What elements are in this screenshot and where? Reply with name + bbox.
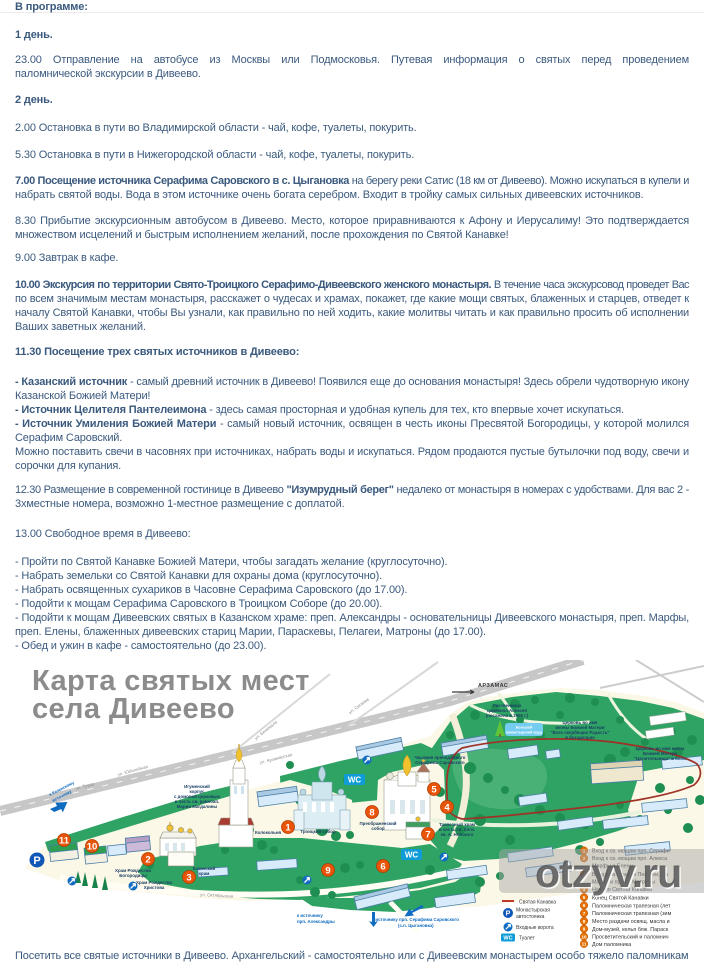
svg-text:к источнику прп. Серафима Саро: к источнику прп. Серафима Саровского: [372, 917, 459, 922]
svg-text:8: 8: [583, 919, 586, 924]
svg-text:Серафима Саровского: Серафима Саровского: [415, 760, 465, 765]
svg-text:(с.п. Цыгановка): (с.п. Цыгановка): [398, 923, 434, 928]
svg-text:10: 10: [581, 934, 587, 939]
svg-text:автостоянка: автостоянка: [516, 914, 545, 920]
svg-text:7: 7: [583, 911, 586, 916]
svg-text:11: 11: [59, 836, 70, 847]
svg-text:Христова: Христова: [144, 885, 165, 890]
svg-text:собор: собор: [371, 826, 385, 831]
svg-text:2: 2: [145, 855, 150, 866]
svg-text:Монастырская: Монастырская: [516, 908, 550, 914]
svg-text:кн. А. Невского: кн. А. Невского: [441, 832, 474, 837]
svg-text:Место раздачи освящ. масла и: Место раздачи освящ. масла и: [592, 919, 670, 925]
svg-text:6: 6: [583, 903, 586, 908]
svg-text:5: 5: [431, 785, 437, 796]
svg-text:WC: WC: [348, 776, 362, 785]
svg-text:Святая Канавка: Святая Канавка: [519, 900, 556, 906]
svg-text:в богадельне: в богадельне: [565, 735, 595, 740]
svg-text:Колокольня: Колокольня: [255, 830, 282, 835]
svg-text:4: 4: [444, 803, 450, 814]
svg-text:прп. Александры: прп. Александры: [297, 919, 335, 924]
svg-text:монастырский пруд: монастырский пруд: [506, 731, 542, 735]
svg-text:Паломническая трапезная (лет: Паломническая трапезная (лет: [592, 903, 671, 909]
svg-text:Дом-музей, келья блж. Параск: Дом-музей, келья блж. Параск: [592, 926, 669, 933]
svg-text:9: 9: [325, 866, 330, 877]
svg-text:6: 6: [380, 862, 385, 873]
svg-text:Богородицы: Богородицы: [119, 873, 147, 878]
svg-text:8: 8: [369, 808, 374, 819]
svg-text:села Дивеево: села Дивеево: [32, 693, 235, 725]
svg-text:WC: WC: [503, 936, 512, 942]
svg-text:1: 1: [285, 823, 291, 834]
svg-text:3: 3: [186, 873, 191, 884]
svg-text:к источнику: к источнику: [297, 913, 323, 918]
svg-text:otzyv.ru: otzyv.ru: [535, 850, 681, 896]
svg-text:храм: храм: [199, 871, 210, 876]
svg-text:P: P: [506, 911, 511, 918]
svg-text:Дом паломника: Дом паломника: [592, 942, 631, 948]
svg-text:Входные ворота: Входные ворота: [516, 925, 554, 931]
svg-text:10: 10: [87, 842, 98, 853]
svg-text:Паломническая трапезная (зим: Паломническая трапезная (зим: [592, 911, 672, 917]
svg-text:"Целительница" в боль: "Целительница" в боль: [634, 756, 686, 761]
svg-text:Большой: Большой: [516, 726, 533, 730]
svg-text:(посажена в 1905 г.): (посажена в 1905 г.): [486, 713, 529, 718]
svg-text:Просветительский и паломнич: Просветительский и паломнич: [592, 934, 669, 941]
svg-text:Марии Магдалины: Марии Магдалины: [177, 804, 218, 809]
svg-text:Туалет: Туалет: [519, 936, 536, 942]
svg-text:11: 11: [582, 942, 587, 947]
svg-text:P: P: [33, 855, 40, 867]
svg-text:АРЗАМАС: АРЗАМАС: [478, 683, 508, 689]
svg-text:7: 7: [425, 830, 430, 841]
svg-text:9: 9: [583, 927, 586, 932]
svg-text:Троицкий собор: Троицкий собор: [300, 829, 336, 834]
svg-text:WC: WC: [405, 851, 419, 860]
